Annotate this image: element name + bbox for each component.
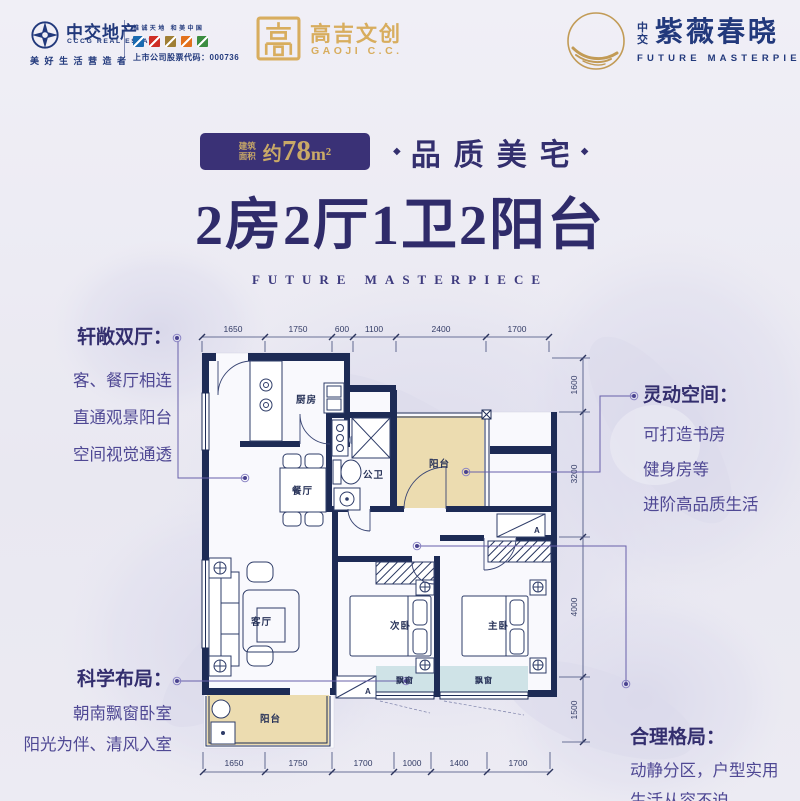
- brand-name: 紫薇春晓: [655, 10, 779, 50]
- room-label-balcony-bottom: 阳台: [260, 713, 281, 725]
- dim-top-1: 1650: [224, 324, 243, 334]
- quality-text: 品质美宅: [411, 130, 583, 174]
- dim-bottom-6: 1700: [509, 758, 528, 768]
- dim-right-1: 1600: [569, 375, 579, 394]
- area-badge-label: 建筑 面积: [239, 142, 256, 161]
- dim-right-4: 1500: [569, 700, 579, 719]
- brand-square-icon: [181, 36, 192, 47]
- area-label-line2: 面积: [239, 152, 256, 162]
- brand-square-icon: [149, 36, 160, 47]
- dim-right-3: 4000: [569, 597, 579, 616]
- cccg-tagline: 推诚天地 和美中国: [133, 23, 243, 32]
- room-label-dining: 餐厅: [291, 485, 313, 497]
- dim-top-2: 1750: [289, 324, 308, 334]
- dim-bottom-1: 1650: [225, 758, 244, 768]
- room-label-bay1: 飘窗: [396, 675, 414, 685]
- dimensions-top: 1650 1750 600 1100 2400 1700: [199, 324, 552, 352]
- room-label-balcony-top: 阳台: [429, 458, 450, 470]
- brand-square-icon: [133, 36, 144, 47]
- dim-top-5: 2400: [432, 324, 451, 334]
- gold-moon-brush-icon: [563, 8, 629, 74]
- room-label-bed1: 主卧: [488, 620, 509, 632]
- room-label-bay2: 飘窗: [475, 675, 493, 685]
- gaoji-logo-block: 高吉文创 GAOJI C.C.: [256, 16, 406, 66]
- ac-spot-label: A: [365, 687, 372, 696]
- cccg-brand-squares: [133, 36, 243, 47]
- dimensions-right: 1600 3200 4000 1500: [552, 355, 590, 745]
- main-title: 2房2厅1卫2阳台: [0, 180, 800, 261]
- area-value-number: 78: [282, 135, 311, 167]
- dim-bottom-5: 1400: [450, 758, 469, 768]
- dimensions-bottom: 1650 1750 1700 1000 1400 1700: [200, 752, 553, 775]
- cccg-stock-code: 上市公司股票代码：000736: [133, 52, 243, 63]
- compass-rose-icon: [30, 20, 60, 50]
- dim-top-4: 1100: [365, 324, 384, 334]
- ac-spot-label: A: [534, 526, 541, 535]
- diamond-icon: ◆: [393, 146, 401, 157]
- floorplan: 1650 1750 600 1100 2400 1700 1650 1750: [0, 300, 800, 801]
- dim-top-3: 600: [335, 324, 349, 334]
- header-divider: [124, 20, 125, 58]
- seal-square-icon: [256, 16, 301, 61]
- poster: 中交地产 CCCG REAL ESTATE 美好生活营造者 推诚天地 和美中国 …: [0, 0, 800, 801]
- area-value-prefix: 约: [263, 144, 282, 165]
- room-label-kitchen: 厨房: [296, 394, 317, 406]
- room-label-living: 客厅: [250, 616, 272, 628]
- area-badge: 建筑 面积 约78m²: [200, 133, 370, 170]
- dim-bottom-2: 1750: [289, 758, 308, 768]
- quality-tagline: ◆ 品质美宅 ◆: [383, 133, 598, 170]
- cccg-slogan: 美好生活营造者: [30, 54, 132, 67]
- area-value-unit: m²: [311, 144, 331, 164]
- brand-prefix: 中交: [637, 22, 651, 46]
- dim-bottom-3: 1700: [354, 758, 373, 768]
- cccg-sub-block: 推诚天地 和美中国 上市公司股票代码：000736: [133, 23, 243, 63]
- gaoji-name-en: GAOJI C.C.: [311, 45, 403, 57]
- diamond-icon: ◆: [581, 146, 589, 157]
- brand-square-icon: [197, 36, 208, 47]
- brand-square-icon: [165, 36, 176, 47]
- brand-logo-block: 中交 紫薇春晓 FUTURE MASTERPIECE: [563, 8, 783, 74]
- brand-name-en: FUTURE MASTERPIECE: [637, 53, 800, 64]
- dim-right-2: 3200: [569, 464, 579, 483]
- dim-bottom-4: 1000: [403, 758, 422, 768]
- room-label-bath: 公卫: [363, 470, 384, 481]
- dim-top-6: 1700: [508, 324, 527, 334]
- gaoji-name: 高吉文创: [310, 18, 402, 48]
- room-label-bed2: 次卧: [390, 620, 411, 632]
- area-badge-value: 约78m²: [263, 135, 331, 168]
- divider-caption: FUTURE MASTERPIECE: [0, 272, 800, 288]
